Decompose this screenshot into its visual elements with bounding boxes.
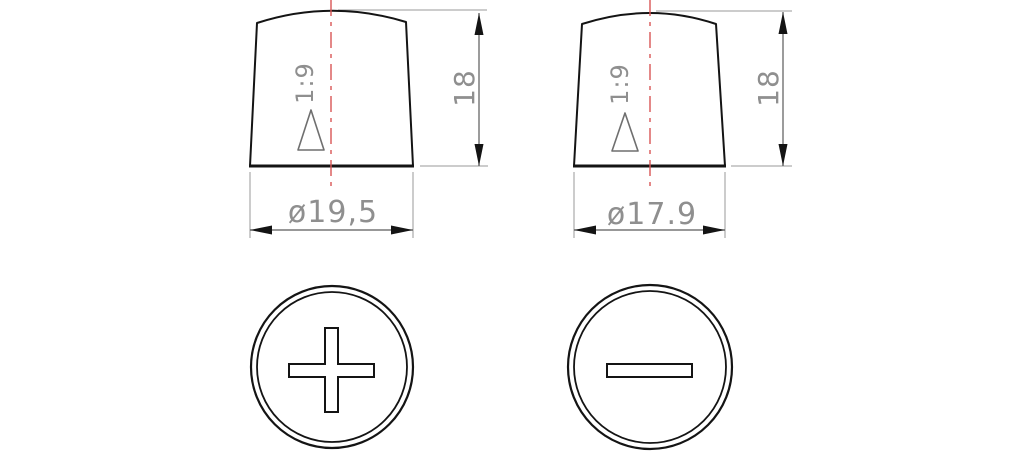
height-dimension: 18 [448, 13, 484, 166]
height-dimension: 18 [752, 12, 788, 166]
technical-drawing-canvas: 1:9 18 ø19,5 1:9 [0, 0, 1024, 469]
diameter-value-label: ø17.9 [607, 197, 697, 232]
negative-post-front-view: 1:9 18 ø17.9 [573, 0, 792, 238]
positive-post-front-view: 1:9 18 ø19,5 [249, 0, 488, 238]
arrowhead-left-icon [250, 226, 272, 235]
diameter-dimension: ø17.9 [574, 197, 725, 235]
arrowhead-down-icon [779, 144, 788, 166]
taper-ratio-label: 1:9 [291, 62, 319, 104]
arrowhead-down-icon [475, 144, 484, 166]
arrowhead-left-icon [574, 226, 596, 235]
negative-post-top-view [568, 285, 732, 449]
drawing-svg: 1:9 18 ø19,5 1:9 [0, 0, 1024, 469]
minus-symbol-icon [607, 364, 692, 377]
diameter-value-label: ø19,5 [288, 195, 378, 230]
positive-post-top-view [251, 286, 413, 448]
arrowhead-right-icon [391, 226, 413, 235]
arrowhead-up-icon [779, 12, 788, 34]
taper-ratio-label: 1:9 [606, 63, 634, 105]
arrowhead-right-icon [703, 226, 725, 235]
height-value-label: 18 [448, 69, 481, 107]
diameter-dimension: ø19,5 [250, 195, 413, 235]
arrowhead-up-icon [475, 13, 484, 35]
height-value-label: 18 [752, 69, 785, 107]
